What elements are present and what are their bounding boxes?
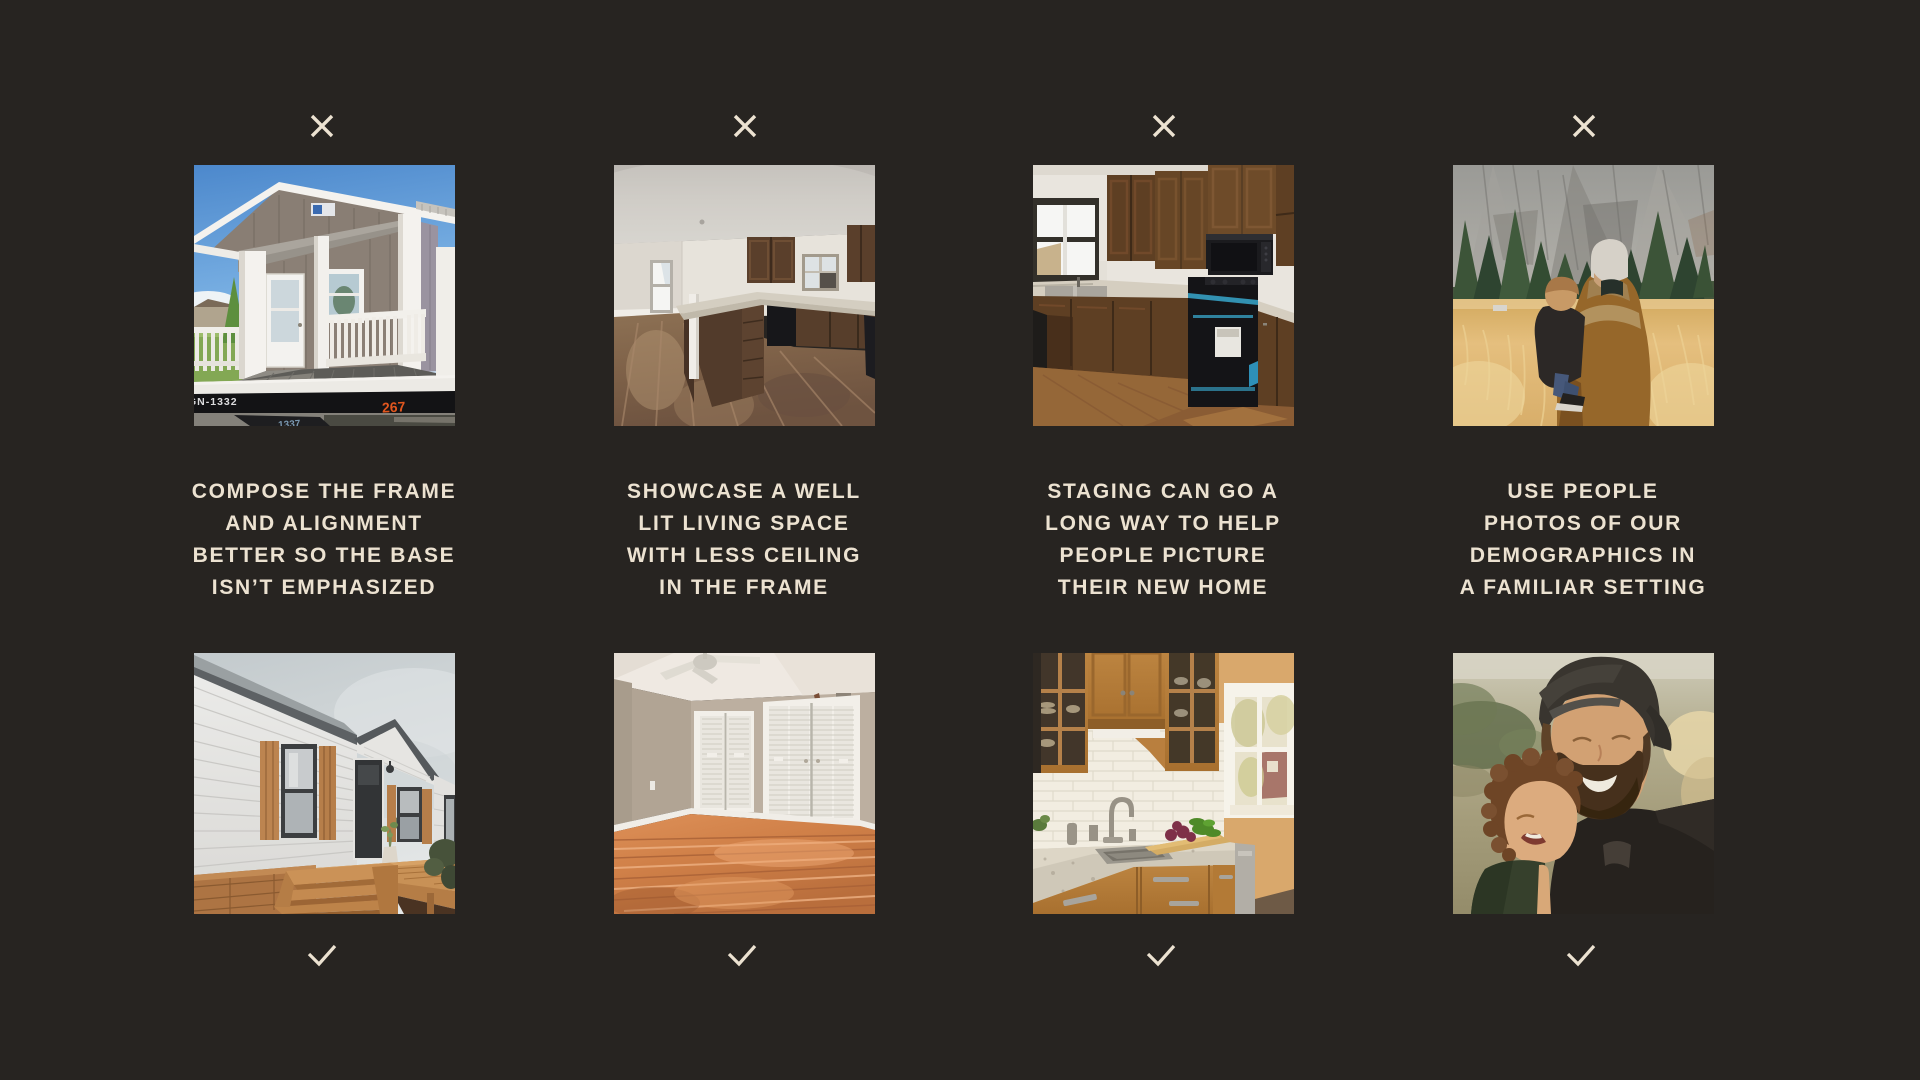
- svg-text:1337: 1337: [278, 419, 301, 426]
- svg-text:GN-1332: GN-1332: [194, 396, 238, 408]
